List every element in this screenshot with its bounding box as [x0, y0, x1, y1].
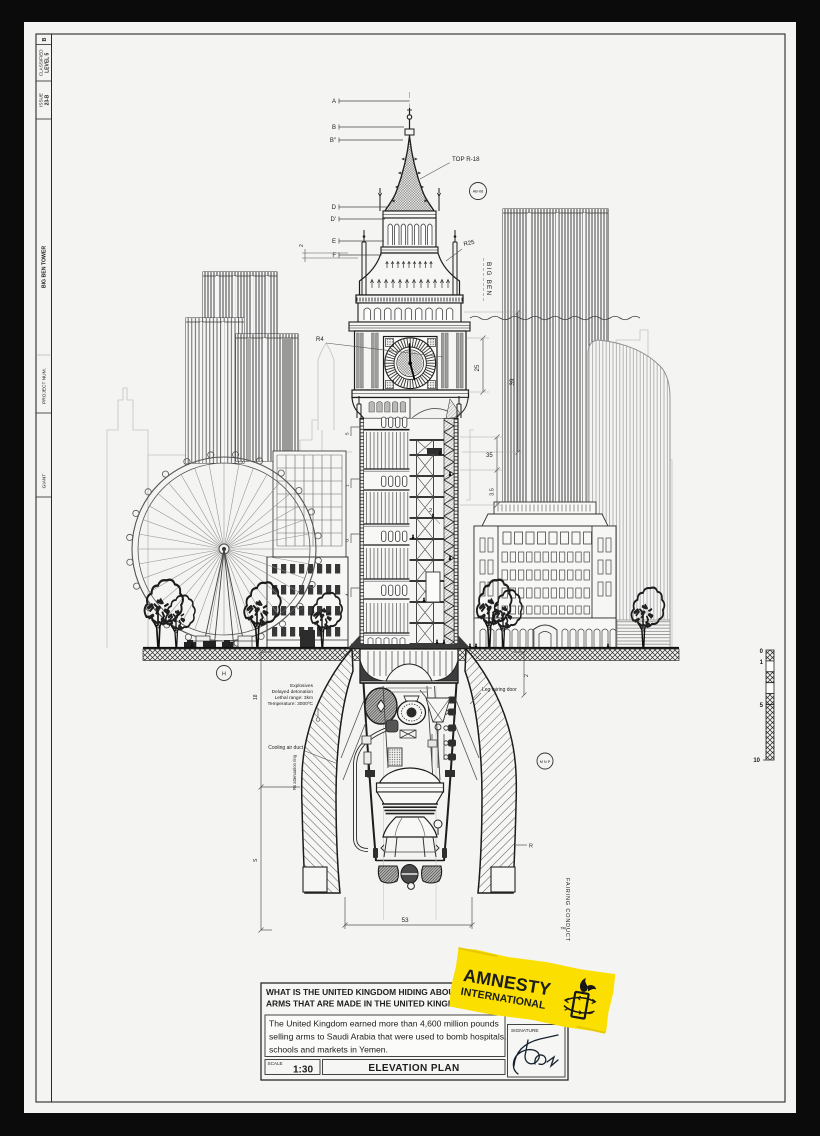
- svg-text:18: 18: [253, 694, 259, 700]
- svg-text:1:30: 1:30: [293, 1065, 313, 1076]
- svg-text:Rs attenuation ring: Rs attenuation ring: [292, 754, 297, 790]
- svg-text:D': D': [331, 217, 336, 223]
- svg-text:selling arms to Saudi Arabia t: selling arms to Saudi Arabia that were u…: [269, 1032, 506, 1042]
- svg-text:schools and markets in Yemen.: schools and markets in Yemen.: [269, 1045, 388, 1055]
- svg-text:Delayed detonation: Delayed detonation: [272, 689, 314, 695]
- svg-text:SCALE: SCALE: [268, 1061, 283, 1066]
- svg-text:ISSUE: ISSUE: [39, 93, 44, 107]
- svg-text:Cooling air duct: Cooling air duct: [268, 745, 303, 751]
- svg-text:B″: B″: [330, 138, 337, 144]
- svg-text:GIANT: GIANT: [42, 474, 48, 489]
- svg-text:SIGNATURE: SIGNATURE: [511, 1028, 539, 1034]
- svg-text:B: B: [332, 125, 336, 131]
- svg-text:The United Kingdom earned more: The United Kingdom earned more than 4,60…: [269, 1019, 499, 1029]
- svg-text:R: R: [529, 844, 533, 850]
- svg-text:2: 2: [524, 674, 530, 677]
- svg-text:CLASSIFIED: CLASSIFIED: [39, 49, 44, 76]
- svg-text:Explosives: Explosives: [290, 683, 314, 689]
- svg-text:53: 53: [401, 917, 409, 924]
- svg-text:Lethal range: 3km: Lethal range: 3km: [275, 695, 313, 701]
- svg-text:A: A: [332, 99, 336, 105]
- svg-text:BIG BEN TOWER: BIG BEN TOWER: [42, 246, 48, 289]
- svg-text:M N P: M N P: [540, 760, 551, 764]
- svg-text:U: U: [345, 539, 350, 542]
- svg-text:TOP R-18: TOP R-18: [452, 156, 480, 163]
- svg-text:PROJECT NUM.: PROJECT NUM.: [42, 368, 48, 404]
- svg-text:39: 39: [509, 378, 516, 385]
- svg-text:Leg fairing door: Leg fairing door: [482, 687, 517, 693]
- svg-text:Temperature: 3000ºC: Temperature: 3000ºC: [268, 701, 314, 707]
- svg-text:AB-08: AB-08: [473, 190, 484, 194]
- svg-text:10: 10: [753, 758, 760, 764]
- svg-text:B: B: [42, 37, 48, 41]
- svg-text:25: 25: [474, 364, 481, 371]
- svg-text:2: 2: [429, 508, 432, 514]
- svg-text:35: 35: [486, 453, 493, 459]
- svg-text:ARMS THAT ARE MADE IN THE UNIT: ARMS THAT ARE MADE IN THE UNITED KINGDOM…: [266, 999, 473, 1009]
- svg-text:2: 2: [299, 244, 305, 247]
- svg-text:WHAT IS THE UNITED KINGDOM HID: WHAT IS THE UNITED KINGDOM HIDING ABOUT: [266, 987, 460, 997]
- svg-text:1: 1: [345, 484, 350, 487]
- svg-text:™: ™: [560, 926, 566, 933]
- svg-text:23-B: 23-B: [45, 94, 51, 105]
- svg-text:5: 5: [345, 432, 350, 435]
- svg-text:4: 4: [345, 593, 350, 596]
- svg-text:D: D: [332, 205, 337, 211]
- svg-text:LEVEL 5: LEVEL 5: [45, 52, 51, 72]
- svg-text:H: H: [222, 672, 226, 678]
- svg-text:ELEVATION PLAN: ELEVATION PLAN: [368, 1063, 459, 1074]
- svg-text:E: E: [332, 239, 336, 245]
- svg-text:3.5: 3.5: [490, 488, 496, 496]
- svg-text:R4: R4: [316, 337, 324, 343]
- svg-text:BIG BEN: BIG BEN: [485, 262, 492, 296]
